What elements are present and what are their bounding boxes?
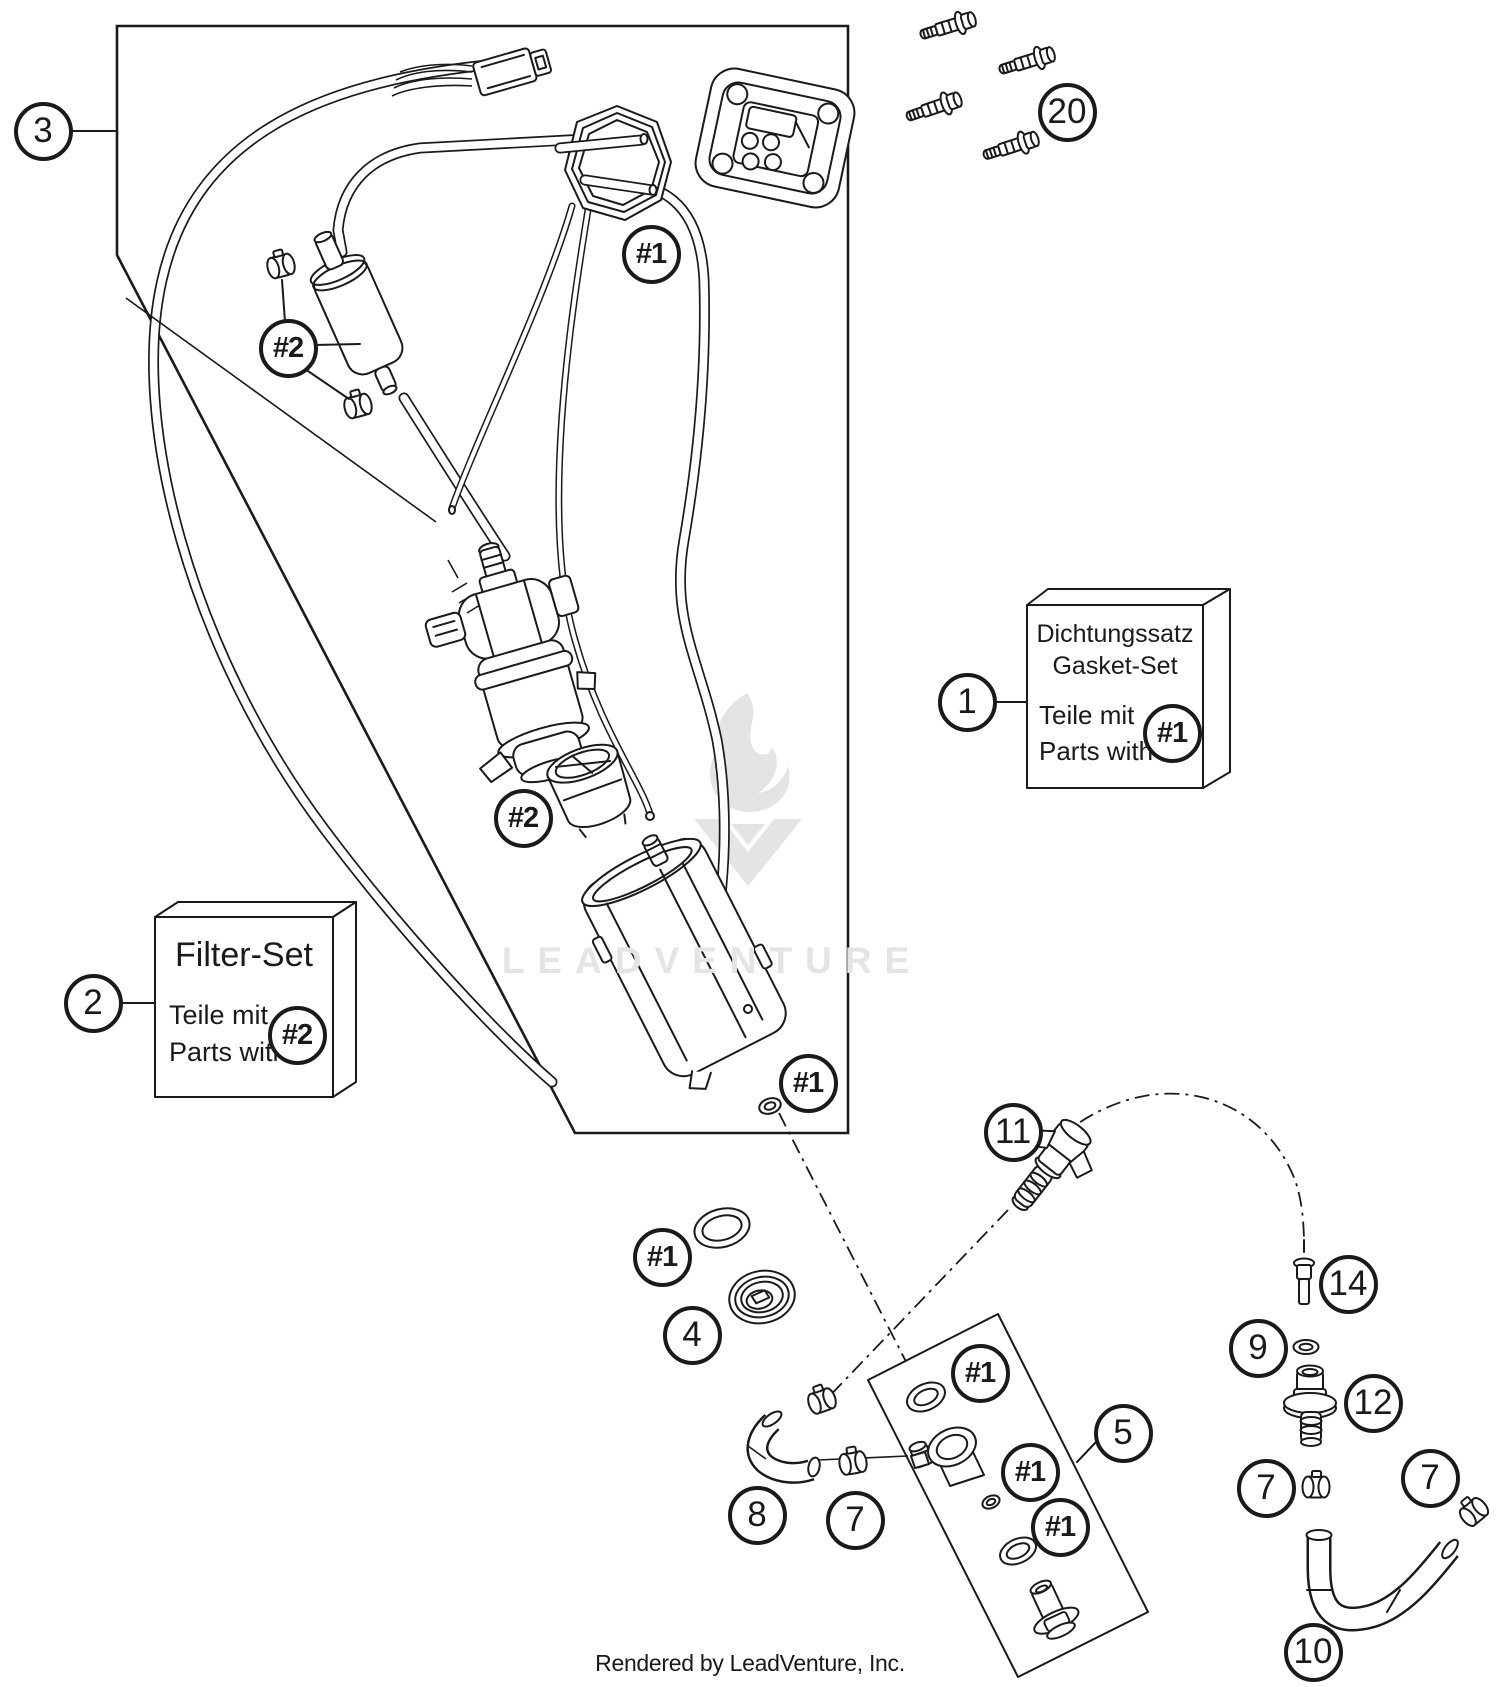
leader-2-filter-a (282, 280, 285, 322)
filter-box-title: Filter-Set (157, 936, 331, 975)
leader-dashdot-arc-11-14 (1056, 1094, 1304, 1246)
callout-14[interactable]: 14 (1319, 1255, 1378, 1314)
callout-5[interactable]: 5 (1094, 1404, 1153, 1463)
ref-2-filter[interactable]: #2 (259, 319, 318, 378)
ref-2-box[interactable]: #2 (268, 1006, 327, 1065)
filter-box-note-de: Teile mit (169, 1000, 268, 1031)
part-fuel-filter[interactable] (295, 222, 419, 405)
callout-10[interactable]: 10 (1284, 1623, 1343, 1682)
callout-7-b[interactable]: 7 (1401, 1449, 1460, 1508)
diagram-line-art (0, 0, 1500, 1687)
ref-1-oring[interactable]: #1 (779, 1054, 838, 1113)
parts-diagram: LEADVENTURE (0, 0, 1500, 1687)
part-filter-clamp-b[interactable] (341, 387, 374, 420)
callout-9[interactable]: 9 (1229, 1319, 1288, 1378)
part-7-clamp-b[interactable] (1453, 1491, 1491, 1529)
footer-credit: Rendered by LeadVenture, Inc. (520, 1650, 980, 1677)
leader-2-filter-c (305, 369, 349, 399)
part-7-clamp-mid[interactable] (837, 1445, 868, 1476)
callout-7-mid[interactable]: 7 (826, 1491, 885, 1550)
leader-dashdot-oring (779, 1113, 922, 1393)
part-8-elbow-hose[interactable] (748, 1409, 821, 1478)
callout-7-a[interactable]: 7 (1237, 1459, 1296, 1518)
callout-2[interactable]: 2 (64, 974, 123, 1033)
gasket-box-title-en: Gasket-Set (1029, 652, 1201, 681)
vent-tube-short (449, 206, 572, 514)
part-20-screws[interactable] (903, 7, 1057, 166)
gasket-box-note-de: Teile mit (1039, 700, 1134, 731)
part-filter-clamp-a[interactable] (264, 247, 297, 280)
part-9-oring[interactable] (1294, 1340, 1319, 1354)
callout-4[interactable]: 4 (663, 1306, 722, 1365)
part-clamp-small[interactable] (804, 1381, 838, 1415)
leader-2-filter-b (314, 344, 360, 345)
watermark-text: LEADVENTURE (462, 940, 962, 982)
callout-8[interactable]: 8 (728, 1486, 787, 1545)
part-1-grommet-ring[interactable] (560, 106, 671, 220)
part-7-clamp-a[interactable] (1303, 1471, 1330, 1498)
ref-1-plate-c[interactable]: #1 (1031, 1498, 1090, 1557)
ref-1-plate-a[interactable]: #1 (951, 1344, 1010, 1403)
ref-2-strainer[interactable]: #2 (494, 789, 553, 848)
leader-5 (1077, 1441, 1097, 1462)
callout-20[interactable]: 20 (1038, 83, 1097, 142)
ref-1-box[interactable]: #1 (1143, 704, 1202, 763)
part-12-pressure-regulator[interactable] (1284, 1366, 1336, 1447)
part-4-grommet[interactable] (724, 1265, 799, 1330)
callout-12[interactable]: 12 (1344, 1374, 1403, 1433)
gasket-box-title-de: Dichtungssatz (1029, 620, 1201, 649)
part-14-pin[interactable] (1294, 1240, 1314, 1304)
ref-1-gasket-ring[interactable]: #1 (622, 225, 681, 284)
ref-1-plate-b[interactable]: #1 (1001, 1443, 1060, 1502)
gasket-box-note-en: Parts with (1039, 736, 1153, 767)
part-10-hose[interactable] (1307, 1530, 1461, 1619)
callout-3[interactable]: 3 (14, 102, 73, 161)
callout-1[interactable]: 1 (938, 673, 997, 732)
callout-11[interactable]: 11 (984, 1103, 1043, 1162)
part-pump-flange-connector[interactable] (691, 64, 859, 212)
part-seal-ring[interactable] (690, 1202, 754, 1253)
ref-1-sealring[interactable]: #1 (633, 1228, 692, 1287)
